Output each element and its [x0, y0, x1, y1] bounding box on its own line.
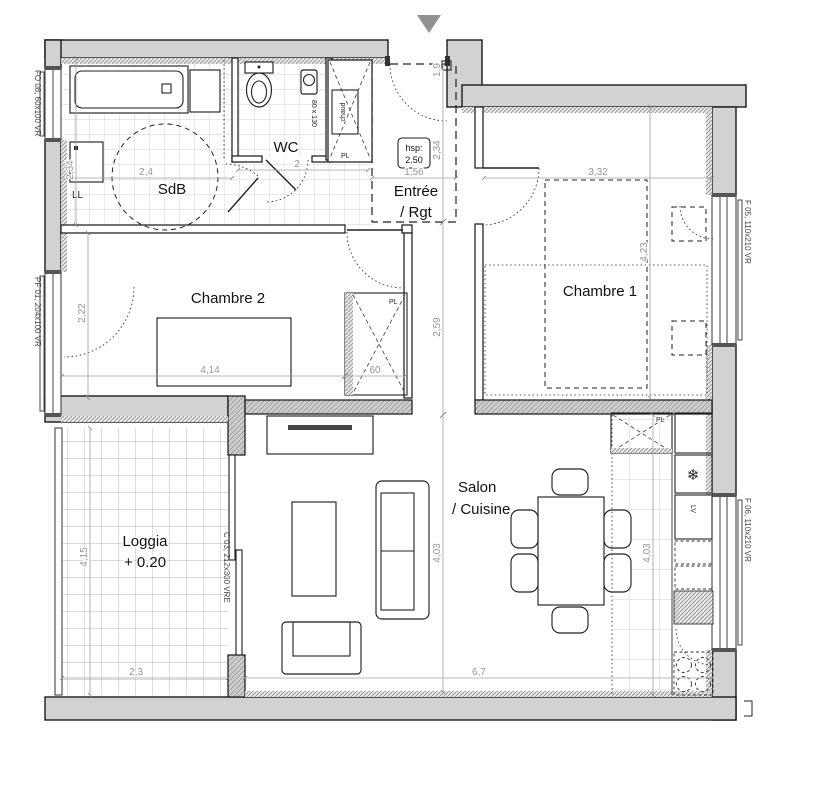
armchair — [282, 622, 361, 674]
dim-hall-depth: 2,59 — [432, 317, 443, 337]
chair — [552, 607, 588, 633]
closet-chambre2: PL — [345, 293, 407, 395]
dim-chambre2-width: 4,14 — [200, 365, 220, 376]
corner-mark — [744, 701, 752, 716]
dim-chambre1-depth: 4,23 — [639, 242, 650, 262]
dim-loggia-width: 2,3 — [129, 667, 143, 678]
door-label-c03: C 03, 212x300 VRE — [222, 532, 231, 603]
washbasin-cabinet — [190, 70, 220, 112]
window-fo08 — [40, 66, 61, 142]
hsp-value: 2.50 — [405, 155, 423, 165]
dim-sdb-width: 2,4 — [139, 167, 153, 178]
hsp-label: hsp: — [405, 143, 422, 153]
room-label-wc: WC — [274, 139, 299, 156]
window-swing-pf01 — [64, 287, 134, 357]
sofa — [376, 481, 429, 619]
room-label-chambre1: Chambre 1 — [563, 283, 637, 300]
chambre1-door — [482, 168, 539, 225]
dim-loggia-depth: 4,15 — [79, 547, 90, 567]
dim-salon-width: 6,7 — [472, 667, 486, 678]
room-label-salon-2: / Cuisine — [452, 501, 510, 518]
window-label-f06: F 06, 110x210 VR — [743, 498, 752, 562]
dishwasher: LV — [675, 495, 712, 539]
nightstand — [672, 207, 706, 241]
closet-chaud: chaud PL — [328, 60, 372, 162]
window-f05 — [712, 193, 742, 347]
washing-machine-label: LL — [72, 190, 84, 201]
chair — [552, 469, 588, 495]
room-label-loggia-1: Loggia — [122, 533, 168, 550]
dim-entree-depth: 2,34 — [432, 140, 443, 160]
chair — [604, 510, 631, 548]
dishwasher-label: LV — [689, 505, 696, 513]
tv-console — [267, 416, 373, 454]
hand-basin — [301, 70, 317, 94]
floor-plan: hsp: 2.50 LL SdB — [0, 0, 833, 800]
chair — [511, 510, 538, 548]
chair — [511, 554, 538, 592]
dim-entree-width: 1,56 — [404, 167, 424, 178]
window-label-pf01: PF 01, 204x100 VR — [33, 277, 42, 347]
room-label-loggia-2: + 0.20 — [124, 554, 166, 571]
wc-size-label: 80 x 130 — [310, 100, 317, 127]
ceiling-height-tag: hsp: 2.50 — [398, 138, 430, 168]
window-pf01 — [40, 270, 61, 417]
dim-salon-depth-mid: 4,03 — [432, 543, 443, 563]
closet-chambre2-label: PL — [389, 299, 398, 306]
window-f06 — [712, 493, 742, 652]
toilet — [245, 62, 273, 107]
chair — [604, 554, 631, 592]
coffee-table — [292, 502, 336, 596]
closet-kitchen-label: PL — [656, 417, 665, 424]
kitchen-counter — [675, 541, 712, 564]
dim-sdb-depth: 2,34 — [65, 160, 76, 180]
room-label-sdb: SdB — [158, 181, 186, 198]
room-label-entree-1: Entrée — [394, 183, 438, 200]
closet-chaud-label: PL — [341, 153, 350, 160]
dim-salon-depth-right: 4,03 — [642, 543, 653, 563]
room-label-chambre2: Chambre 2 — [191, 290, 265, 307]
dim-wc-width: 2 — [294, 159, 300, 170]
room-chambre2: PL Chambre 2 — [64, 230, 407, 395]
water-heater-label: chaud — [340, 102, 347, 121]
nightstand — [672, 321, 706, 355]
window-swing-f05 — [680, 206, 713, 239]
snowflake-icon: ❄ — [687, 467, 700, 484]
dim-entrance-door: 1,9 — [432, 63, 443, 77]
dim-chambre2-depth: 2,22 — [77, 303, 88, 323]
room-chambre1: Chambre 1 — [482, 168, 713, 395]
room-entree: Entrée / Rgt — [394, 183, 438, 221]
floor-plan-drawing: hsp: 2.50 LL SdB — [0, 0, 833, 800]
window-label-f05: F 05, 110x210 VR — [743, 200, 752, 264]
chambre2-door — [347, 230, 403, 288]
window-label-fo08: FO 08, 60x100 VR — [33, 70, 42, 136]
dim-chambre1-width: 3,32 — [588, 167, 608, 178]
bathtub — [70, 66, 188, 113]
entrance-arrow-icon — [417, 15, 441, 33]
loggia-railing — [55, 428, 62, 695]
kitchen-counter — [675, 566, 712, 589]
dim-closet-width: 60 — [369, 365, 381, 376]
room-label-salon-1: Salon — [458, 479, 496, 496]
room-salon: Salon / Cuisine — [267, 416, 631, 674]
room-label-entree-2: / Rgt — [400, 204, 433, 221]
sink — [674, 591, 713, 624]
